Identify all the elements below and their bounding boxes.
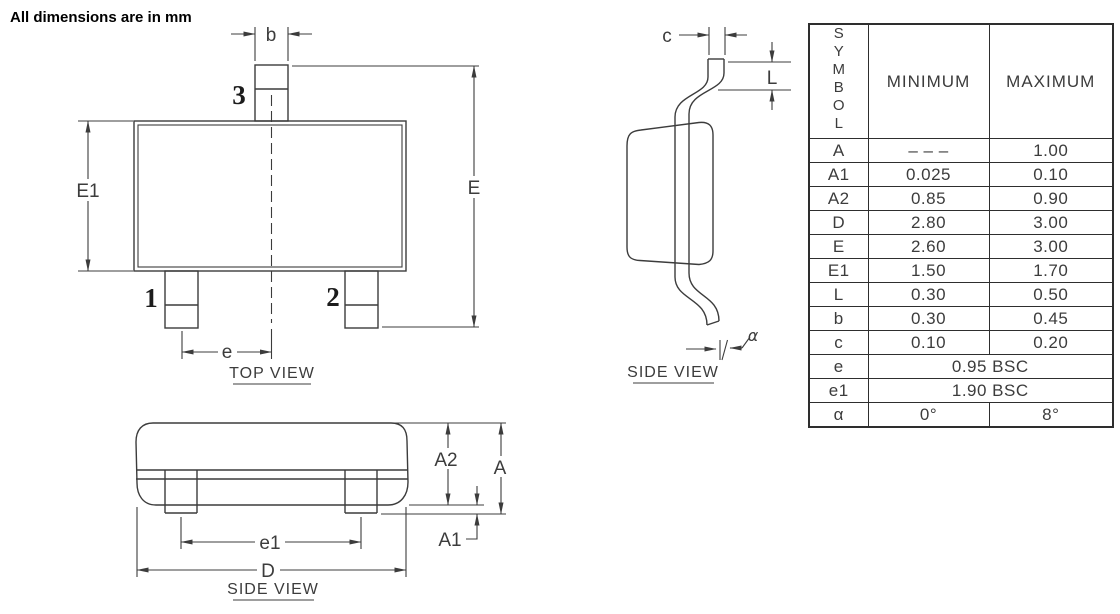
dim-A-label: A (494, 458, 507, 479)
table-row: A1 0.025 0.10 (809, 163, 1113, 187)
symbol-cell: α (809, 403, 868, 428)
pin3-number: 3 (232, 80, 246, 110)
max-cell: 0.10 (989, 163, 1113, 187)
min-cell: 0.025 (868, 163, 989, 187)
max-cell: 3.00 (989, 211, 1113, 235)
lead-left-edge (675, 59, 708, 325)
top-view-label: TOP VIEW (229, 365, 315, 382)
max-cell: 3.00 (989, 235, 1113, 259)
symbol-cell: A (809, 139, 868, 163)
max-cell: 1.70 (989, 259, 1113, 283)
table-row: D 2.80 3.00 (809, 211, 1113, 235)
dim-alpha-label: α (748, 326, 759, 345)
max-cell: 0.20 (989, 331, 1113, 355)
min-cell: 2.60 (868, 235, 989, 259)
pin1-pad (165, 271, 198, 328)
body-outline-outer (134, 121, 406, 271)
span-cell: 0.95 BSC (868, 355, 1113, 379)
dim-D-label: D (261, 561, 275, 582)
dim-E: E (292, 66, 484, 327)
dimension-table: SYMBOL MINIMUM MAXIMUM A – – – 1.00 A1 0… (808, 23, 1114, 428)
dim-c-label: c (662, 26, 672, 47)
dim-e1: e1 (181, 517, 361, 554)
pin2-pad (345, 271, 378, 328)
dim-L-label: L (767, 68, 778, 89)
dim-e: e (182, 329, 272, 363)
front-view-label: SIDE VIEW (227, 581, 319, 598)
dim-A1-label: A1 (438, 530, 461, 551)
body-front-outline (136, 423, 408, 505)
min-cell: 0.30 (868, 283, 989, 307)
symbol-cell: D (809, 211, 868, 235)
symbol-cell: e1 (809, 379, 868, 403)
min-cell: 1.50 (868, 259, 989, 283)
symbol-cell: A2 (809, 187, 868, 211)
dim-alpha: α (686, 326, 759, 360)
max-cell: 1.00 (989, 139, 1113, 163)
table-row: e1 1.90 BSC (809, 379, 1113, 403)
front-lead-left (165, 470, 197, 513)
min-cell: 2.80 (868, 211, 989, 235)
table-row: A2 0.85 0.90 (809, 187, 1113, 211)
pin1-number: 1 (144, 283, 158, 313)
symbol-cell: E (809, 235, 868, 259)
symbol-cell: e (809, 355, 868, 379)
maximum-header: MAXIMUM (989, 24, 1113, 139)
table-row: b 0.30 0.45 (809, 307, 1113, 331)
max-cell: 0.50 (989, 283, 1113, 307)
table-row: e 0.95 BSC (809, 355, 1113, 379)
dim-c: c (662, 26, 747, 55)
table-row: c 0.10 0.20 (809, 331, 1113, 355)
min-cell: 0.85 (868, 187, 989, 211)
dim-A2: A2 (430, 423, 463, 505)
min-cell: 0.10 (868, 331, 989, 355)
max-cell: 8° (989, 403, 1113, 428)
dim-E1: E1 (73, 121, 133, 271)
dim-E1-label: E1 (76, 181, 99, 202)
table-row: α 0° 8° (809, 403, 1113, 428)
symbol-header-cell: SYMBOL (809, 24, 868, 139)
table-row: E 2.60 3.00 (809, 235, 1113, 259)
min-cell: 0° (868, 403, 989, 428)
dim-e-label: e (222, 342, 233, 363)
pin2-number: 2 (326, 282, 340, 312)
package-outline-drawing: b E1 E e 3 1 2 TOP VIEW (0, 0, 800, 614)
table-header-row: SYMBOL MINIMUM MAXIMUM (809, 24, 1113, 139)
table-row: E1 1.50 1.70 (809, 259, 1113, 283)
min-cell: 0.30 (868, 307, 989, 331)
dim-A1: A1 (438, 486, 477, 551)
body-profile (627, 122, 713, 264)
minimum-header: MINIMUM (868, 24, 989, 139)
symbol-cell: E1 (809, 259, 868, 283)
dim-b: b (231, 25, 312, 61)
side-view-drawing: c L α SIDE VIEW (627, 26, 791, 383)
front-lead-right (345, 470, 377, 513)
dim-b-label: b (266, 25, 277, 46)
top-view-drawing: b E1 E e 3 1 2 TOP VIEW (73, 25, 484, 384)
min-cell: – – – (868, 139, 989, 163)
table-row: L 0.30 0.50 (809, 283, 1113, 307)
dim-e1-label: e1 (259, 533, 280, 554)
max-cell: 0.45 (989, 307, 1113, 331)
dim-L: L (718, 42, 791, 110)
symbol-cell: L (809, 283, 868, 307)
dim-A2-label: A2 (434, 450, 457, 471)
symbol-cell: b (809, 307, 868, 331)
body-outline-inner (138, 125, 402, 267)
symbol-cell: A1 (809, 163, 868, 187)
front-view-drawing: A2 A A1 e1 D SIDE VIEW (136, 423, 510, 600)
dim-A: A (490, 423, 510, 514)
max-cell: 0.90 (989, 187, 1113, 211)
table-row: A – – – 1.00 (809, 139, 1113, 163)
symbol-cell: c (809, 331, 868, 355)
side-view-label: SIDE VIEW (627, 364, 719, 381)
symbol-header: SYMBOL (831, 25, 846, 133)
dim-E-label: E (468, 178, 481, 199)
lead-bottom-tip (707, 321, 719, 325)
lead-right-edge (689, 59, 724, 321)
span-cell: 1.90 BSC (868, 379, 1113, 403)
